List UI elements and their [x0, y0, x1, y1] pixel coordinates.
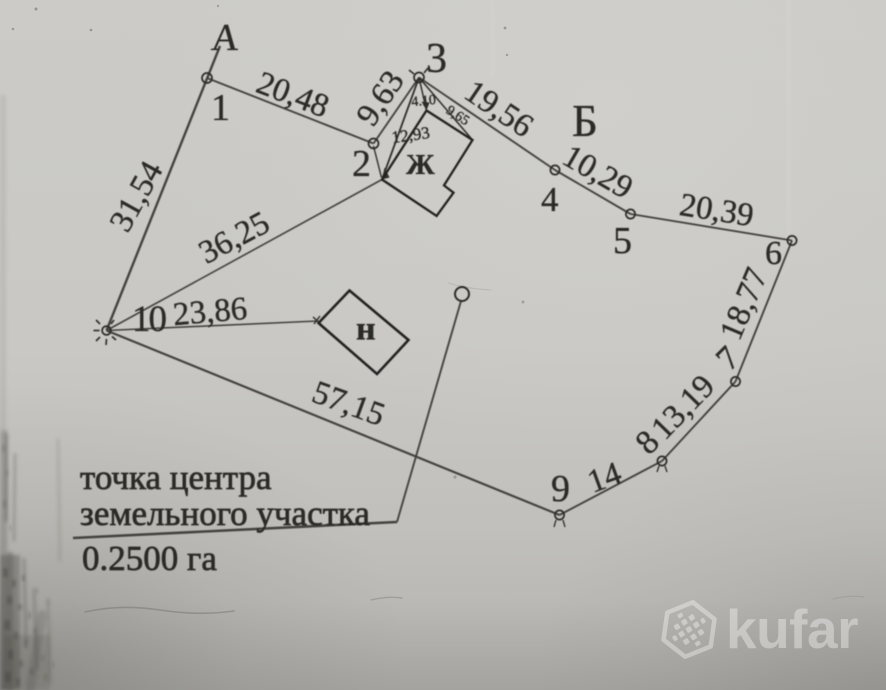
svg-text:9: 9 [551, 468, 570, 510]
svg-text:4: 4 [541, 180, 559, 219]
svg-text:23,86: 23,86 [172, 291, 249, 333]
svg-text:6: 6 [765, 235, 782, 272]
svg-text:Ж: Ж [406, 149, 435, 181]
svg-text:10: 10 [132, 299, 167, 340]
svg-text:2: 2 [352, 143, 371, 185]
svg-text:5: 5 [613, 220, 632, 262]
svg-text:3: 3 [426, 36, 447, 82]
svg-text:н: н [356, 311, 376, 348]
svg-text:точка центра: точка центра [80, 458, 272, 497]
svg-text:А: А [210, 17, 242, 59]
svg-text:земельного участка: земельного участка [80, 494, 370, 533]
svg-text:0.2500 га: 0.2500 га [82, 539, 217, 578]
svg-text:1: 1 [211, 87, 230, 129]
svg-text:kufar: kufar [726, 598, 858, 660]
svg-text:4.10: 4.10 [411, 93, 437, 110]
